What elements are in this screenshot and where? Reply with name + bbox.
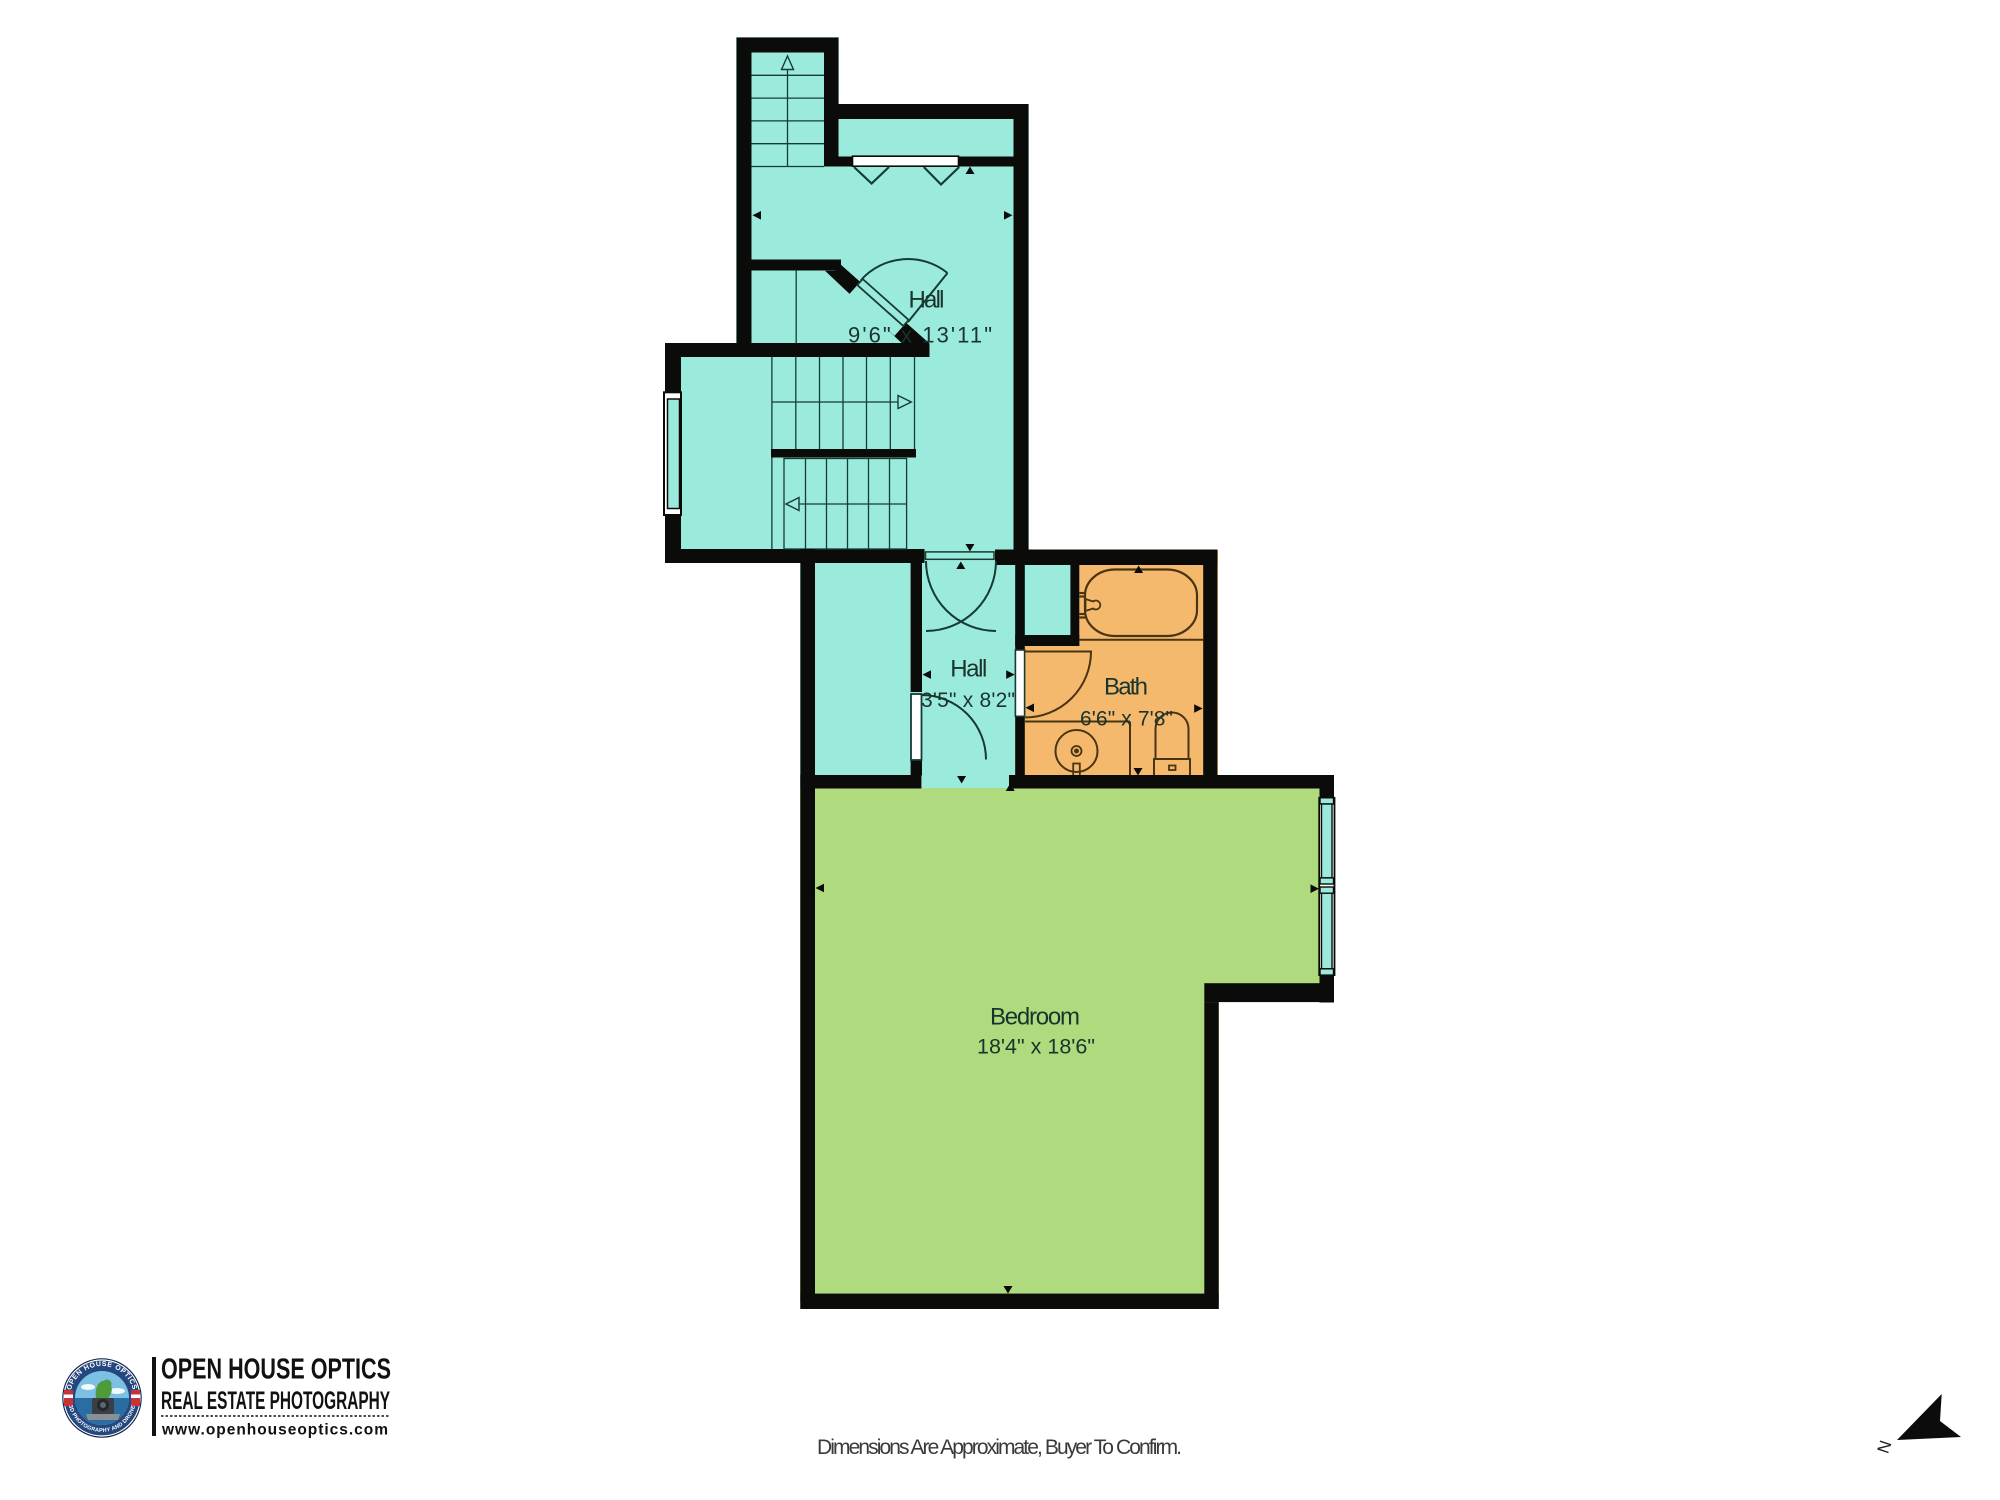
svg-text:Bath: Bath	[1104, 674, 1148, 701]
svg-text:www.openhouseoptics.com: www.openhouseoptics.com	[161, 1422, 388, 1439]
svg-text:Hall: Hall	[909, 287, 945, 314]
svg-text:Dimensions Are Approximate, Bu: Dimensions Are Approximate, Buyer To Con…	[817, 1436, 1182, 1459]
svg-text:3'5" x 8'2": 3'5" x 8'2"	[921, 689, 1015, 712]
svg-text:9'6" x 13'11": 9'6" x 13'11"	[848, 323, 992, 348]
svg-text:18'4" x 18'6": 18'4" x 18'6"	[977, 1035, 1095, 1059]
svg-text:OPEN HOUSE OPTICS: OPEN HOUSE OPTICS	[161, 1354, 391, 1386]
svg-text:6'6" x 7'8": 6'6" x 7'8"	[1080, 708, 1173, 731]
svg-text:Hall: Hall	[950, 656, 987, 683]
svg-text:Bedroom: Bedroom	[990, 1004, 1080, 1031]
svg-text:REAL ESTATE PHOTOGRAPHY: REAL ESTATE PHOTOGRAPHY	[161, 1387, 390, 1415]
